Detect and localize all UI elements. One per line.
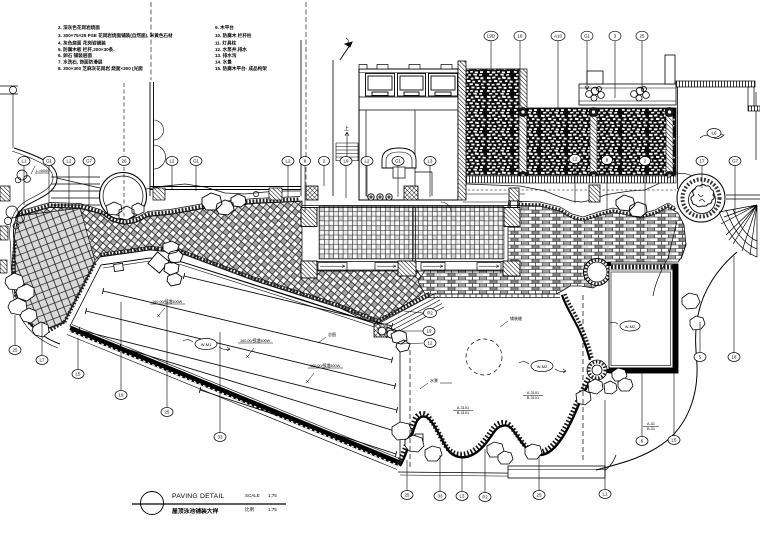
svg-text:L7: L7 bbox=[40, 358, 45, 363]
svg-text:W-M2: W-M2 bbox=[625, 324, 636, 329]
svg-text:L9D: L9D bbox=[487, 34, 495, 39]
svg-text:25: 25 bbox=[640, 34, 645, 39]
svg-text:8. 300×300 芝麻灰花岗岩 烧面×300 (光面: 8. 300×300 芝麻灰花岗岩 烧面×300 (光面 bbox=[58, 65, 143, 72]
svg-text:B-31: B-31 bbox=[647, 427, 655, 431]
svg-text:33: 33 bbox=[438, 494, 443, 499]
svg-text:6. 卵石 铺装层面: 6. 卵石 铺装层面 bbox=[58, 52, 92, 59]
svg-text:G1: G1 bbox=[193, 159, 199, 164]
svg-text:W-M2: W-M2 bbox=[537, 364, 548, 369]
svg-text:11. 灯具柱: 11. 灯具柱 bbox=[215, 40, 237, 47]
svg-text:L2: L2 bbox=[286, 159, 291, 164]
svg-text:1:75: 1:75 bbox=[268, 507, 277, 512]
svg-text:13. 排水沟: 13. 排水沟 bbox=[215, 52, 237, 59]
svg-text:9. 木平台: 9. 木平台 bbox=[215, 24, 234, 31]
svg-text:12. 水泵井,排水: 12. 水泵井,排水 bbox=[215, 46, 247, 53]
svg-text:18: 18 bbox=[732, 355, 737, 360]
svg-text:G7: G7 bbox=[86, 159, 92, 164]
svg-text:G1: G1 bbox=[46, 159, 52, 164]
svg-text:L5: L5 bbox=[672, 438, 677, 443]
svg-text:7. 水洗石, 饰面防滑层: 7. 水洗石, 饰面防滑层 bbox=[58, 59, 103, 66]
svg-text:L3: L3 bbox=[460, 494, 465, 499]
svg-text:总图: 总图 bbox=[328, 331, 336, 337]
svg-text:A-3101: A-3101 bbox=[527, 391, 539, 395]
svg-text:比例: 比例 bbox=[245, 506, 254, 513]
svg-text:屋顶泳池铺装大样: 屋顶泳池铺装大样 bbox=[172, 507, 219, 515]
svg-text:B-3101: B-3101 bbox=[457, 411, 469, 415]
svg-text:L1: L1 bbox=[603, 492, 608, 497]
svg-text:160.00/预埋500W: 160.00/预埋500W bbox=[310, 363, 341, 368]
svg-text:SCALE: SCALE bbox=[245, 493, 260, 498]
svg-text:G7: G7 bbox=[732, 159, 738, 164]
svg-text:10. 防腐木 栏杆柱: 10. 防腐木 栏杆柱 bbox=[215, 32, 252, 39]
svg-text:铺装缝: 铺装缝 bbox=[510, 315, 522, 321]
svg-text:2. 深灰色花岗岩烧面: 2. 深灰色花岗岩烧面 bbox=[58, 24, 100, 31]
svg-text:L9: L9 bbox=[344, 159, 349, 164]
svg-text:L3: L3 bbox=[428, 159, 433, 164]
svg-text:G1: G1 bbox=[395, 159, 401, 164]
svg-text:160.00/预埋500W: 160.00/预埋500W bbox=[240, 338, 271, 343]
svg-text:L2: L2 bbox=[170, 159, 175, 164]
svg-text:3. 300×75×25 PSE 花岗岩烧面铺装(自然面),: 3. 300×75×25 PSE 花岗岩烧面铺装(自然面), 米黄色石材 bbox=[58, 32, 173, 39]
svg-text:上: 上 bbox=[344, 125, 349, 132]
svg-text:25: 25 bbox=[13, 348, 18, 353]
svg-text:L2: L2 bbox=[67, 159, 72, 164]
svg-text:19: 19 bbox=[119, 393, 124, 398]
svg-text:14. 水景: 14. 水景 bbox=[215, 59, 232, 66]
svg-text:W-M1: W-M1 bbox=[201, 342, 212, 347]
svg-text:17: 17 bbox=[700, 159, 705, 164]
svg-text:B-3101: B-3101 bbox=[527, 396, 539, 400]
svg-text:G1: G1 bbox=[584, 34, 590, 39]
svg-text:PAVING DETAIL: PAVING DETAIL bbox=[172, 493, 224, 500]
svg-text:12: 12 bbox=[428, 341, 433, 346]
svg-text:5. 防腐木板 栏杆,200×30条.: 5. 防腐木板 栏杆,200×30条. bbox=[58, 46, 115, 53]
svg-text:L=6000: L=6000 bbox=[36, 168, 50, 173]
svg-text:水景: 水景 bbox=[430, 377, 438, 383]
svg-text:25: 25 bbox=[537, 493, 542, 498]
svg-text:P2: P2 bbox=[482, 495, 488, 500]
svg-text:L6: L6 bbox=[712, 131, 717, 136]
svg-text:P2: P2 bbox=[427, 311, 433, 316]
svg-text:A-3101: A-3101 bbox=[457, 406, 469, 410]
svg-text:4. 灰色烧面 花岗岩铺装: 4. 灰色烧面 花岗岩铺装 bbox=[58, 40, 106, 47]
svg-text:L5: L5 bbox=[76, 372, 81, 377]
svg-text:160.00/预埋500W: 160.00/预埋500W bbox=[152, 299, 183, 304]
svg-text:L2: L2 bbox=[365, 159, 370, 164]
svg-text:33: 33 bbox=[218, 435, 223, 440]
svg-text:A10: A10 bbox=[554, 34, 562, 39]
svg-text:L1: L1 bbox=[22, 159, 27, 164]
svg-text:18: 18 bbox=[518, 34, 523, 39]
svg-text:19: 19 bbox=[427, 329, 432, 334]
svg-text:25: 25 bbox=[405, 493, 410, 498]
svg-text:A-31: A-31 bbox=[647, 422, 655, 426]
svg-text:1:75: 1:75 bbox=[268, 493, 277, 498]
svg-text:L2: L2 bbox=[573, 157, 578, 162]
svg-text:25: 25 bbox=[165, 410, 170, 415]
svg-text:15. 防腐木平台- 成品构架: 15. 防腐木平台- 成品构架 bbox=[215, 65, 267, 72]
svg-text:26: 26 bbox=[122, 159, 127, 164]
